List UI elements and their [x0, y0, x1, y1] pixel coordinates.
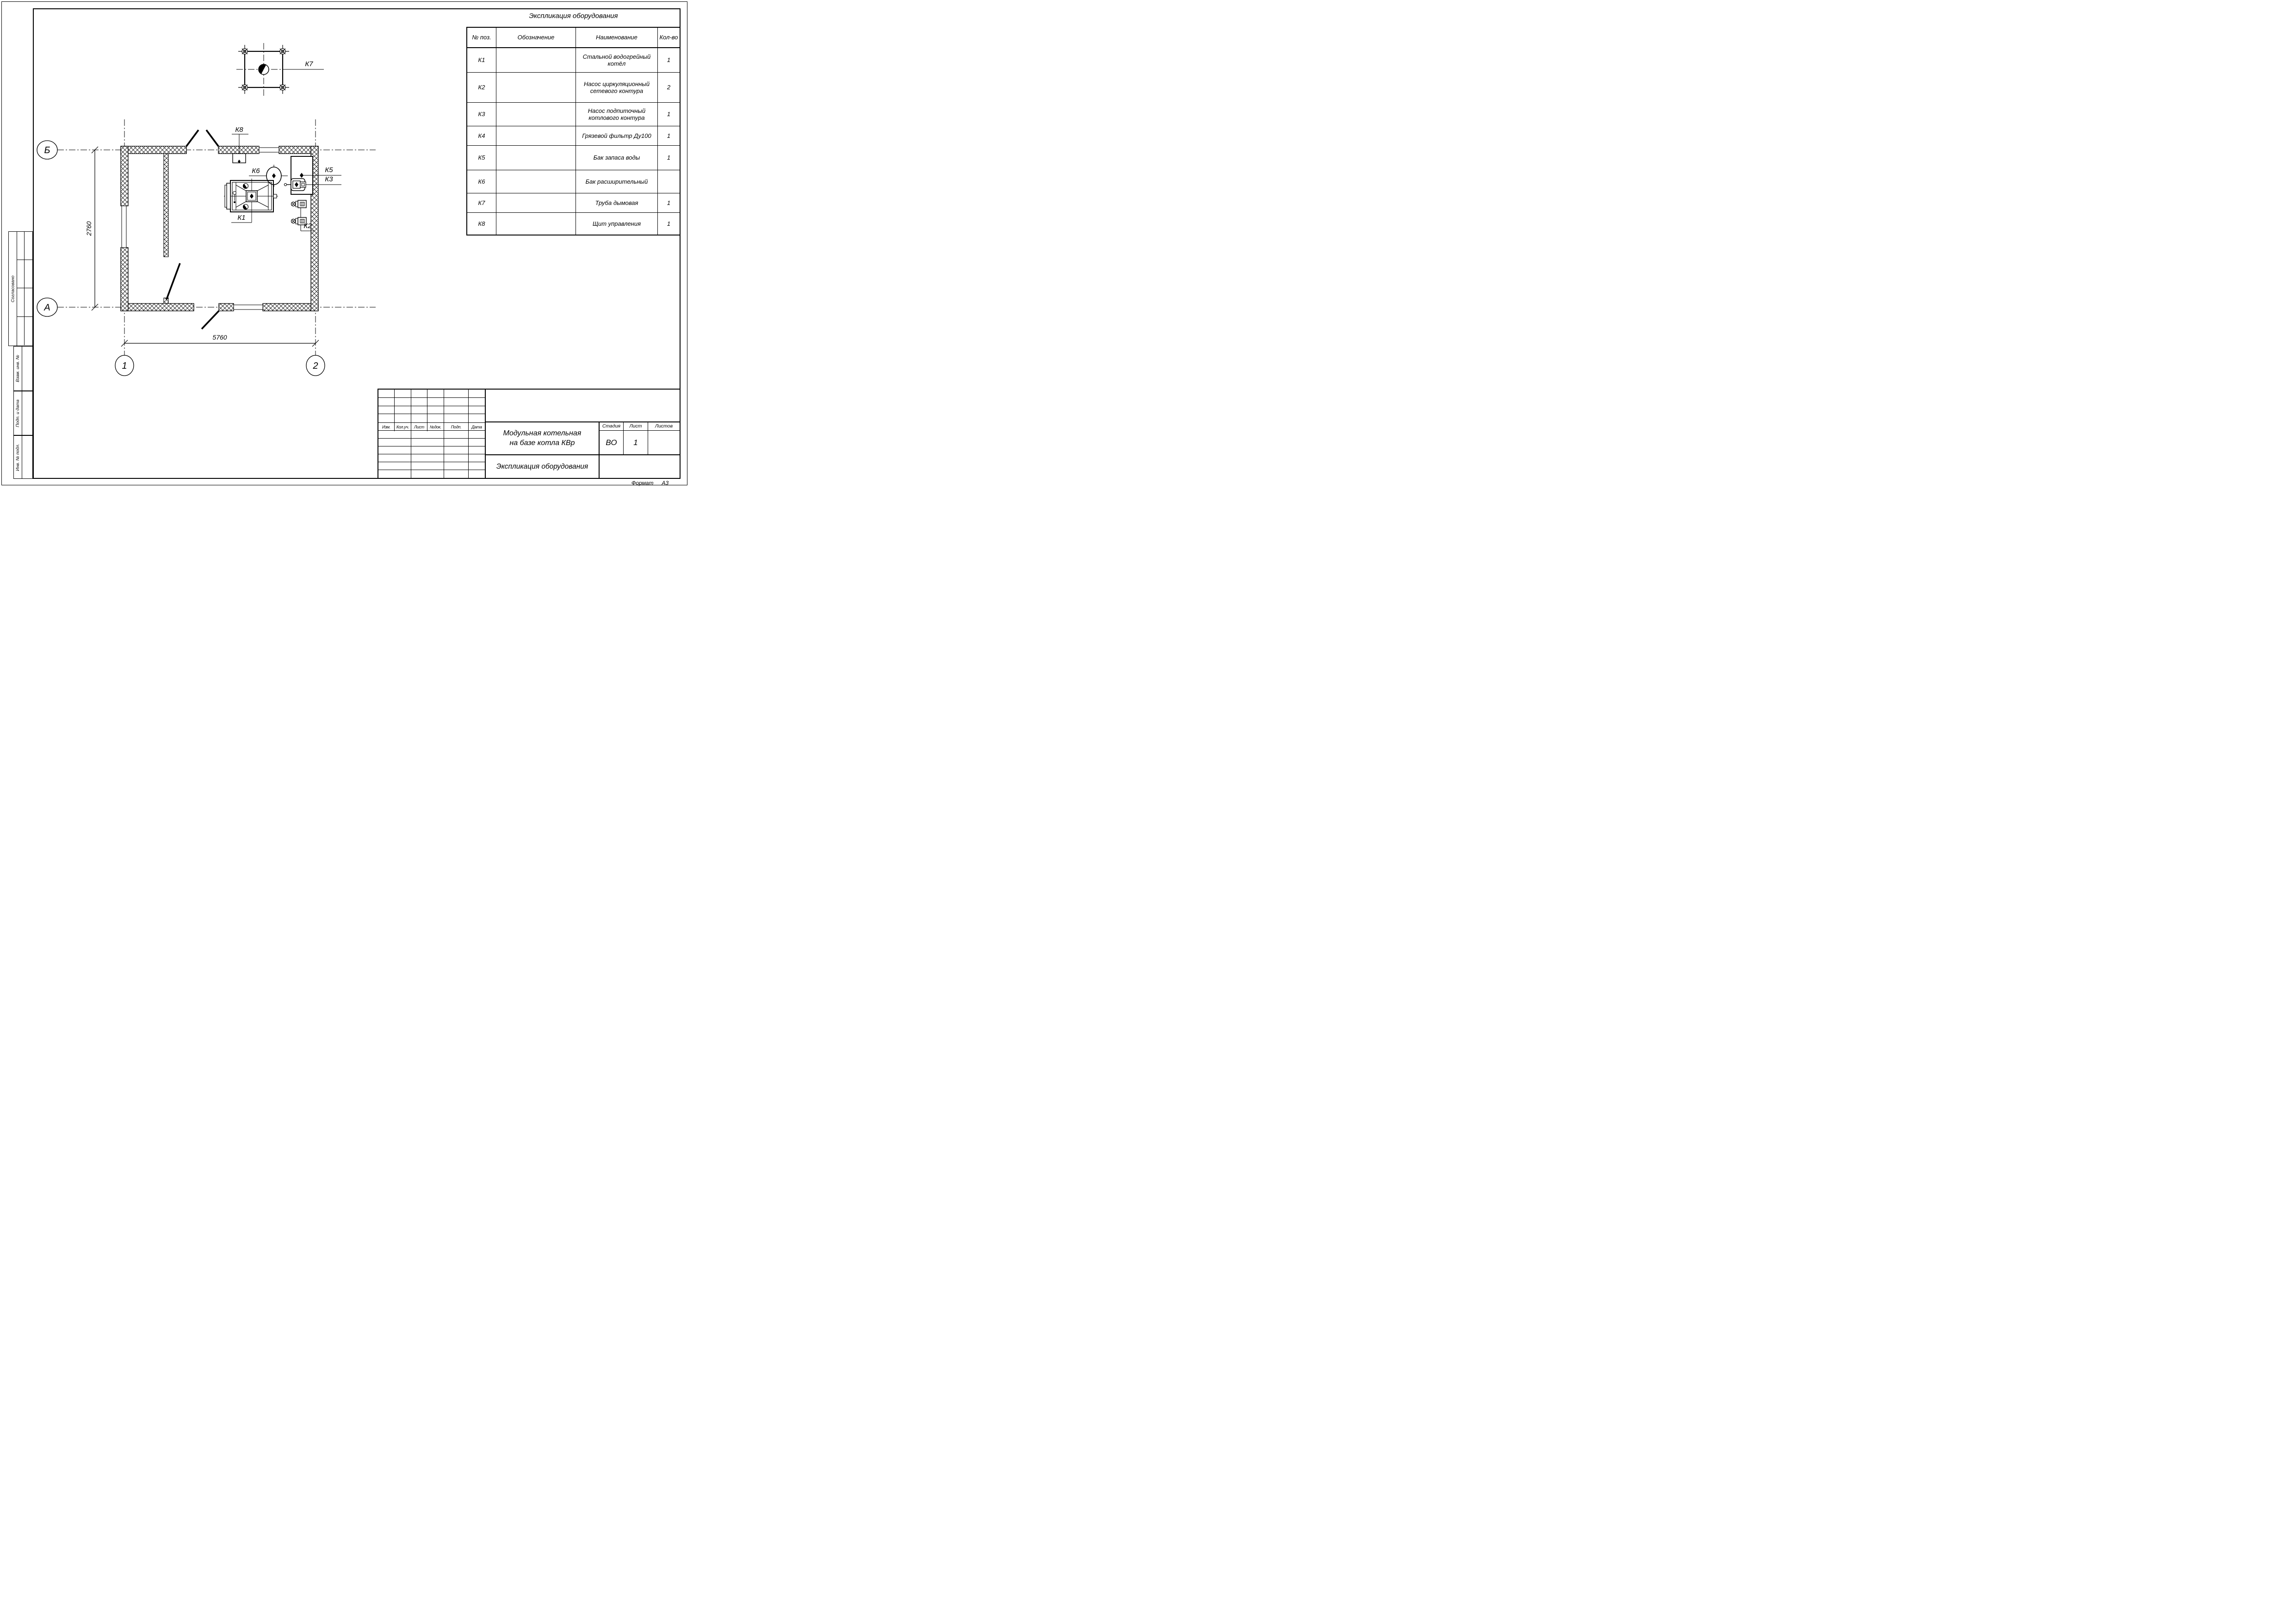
cell-pos: К7 — [467, 193, 496, 212]
cell-name: Стальной водогрейный котёл — [576, 48, 658, 72]
project-name: Модульная котельная на базе котла КВр — [486, 422, 599, 454]
cell-designation — [496, 126, 576, 145]
podp-data-label: Подп. и дата — [14, 391, 22, 435]
rev-header-podp: Подп. — [444, 423, 469, 431]
tag-k8: К8 — [235, 126, 243, 134]
cell-qty: 2 — [658, 73, 680, 102]
table-row: К6 Бак расширительный — [467, 170, 680, 193]
cell-pos: К2 — [467, 73, 496, 102]
cell-designation — [496, 48, 576, 72]
cell-qty — [658, 170, 680, 193]
stage-value: ВО — [600, 431, 623, 454]
equipment-table-header: № поз. Обозначение Наименование Кол-во — [467, 28, 680, 48]
format-label: Формат — [631, 480, 654, 486]
title-block: Изм. Кол.уч. Лист №док. Подп. Дата Модул… — [378, 389, 681, 479]
sheets-label: Листов — [648, 422, 680, 430]
pump-icon — [291, 200, 307, 208]
cell-name: Труба дымовая — [576, 193, 658, 212]
rev-header-ndok: №док. — [427, 423, 444, 431]
cell-qty: 1 — [658, 103, 680, 126]
sheet-value: 1 — [624, 431, 648, 454]
cell-name: Грязевой фильтр Ду100 — [576, 126, 658, 145]
boiler-k1: К1 — [224, 179, 278, 223]
cell-designation — [496, 193, 576, 212]
anchor-bolt-icon — [276, 45, 289, 58]
vzam-inv-label: Взам. инв. № — [14, 347, 22, 390]
rev-header-izm: Изм. — [378, 423, 395, 431]
cell-pos: К5 — [467, 146, 496, 170]
axis-label-1: 1 — [122, 361, 127, 371]
axis-label-2: 2 — [312, 361, 318, 371]
equipment-table-title: Экспликация оборудования — [466, 12, 681, 20]
tag-k3: К3 — [325, 175, 333, 183]
control-panel-k8: К8 — [232, 126, 248, 163]
table-row: К2 Насос циркуляционный сетевого контура… — [467, 73, 680, 103]
project-name-line1: Модульная котельная — [503, 429, 582, 439]
table-row: К8 Щит управления 1 — [467, 213, 680, 235]
col-header-pos: № поз. — [467, 28, 496, 47]
doc-name: Экспликация оборудования — [486, 455, 599, 478]
anchor-bolt-icon — [238, 45, 251, 58]
tag-k5: К5 — [325, 166, 333, 174]
axis-lines — [57, 119, 376, 355]
approval-stamp-label: Согласовано — [9, 232, 17, 346]
interior-door-leaf — [167, 263, 180, 299]
format-value: А3 — [662, 480, 668, 486]
cell-pos: К4 — [467, 126, 496, 145]
cell-designation — [496, 103, 576, 126]
tag-k1: К1 — [237, 214, 245, 222]
tag-k2: К2 — [303, 222, 312, 230]
cell-pos: К8 — [467, 213, 496, 235]
col-header-designation: Обозначение — [496, 28, 576, 47]
chimney-foundation-detail: К7 — [236, 43, 324, 96]
drawing-sheet: { "page": { "format_label": "Формат", "f… — [0, 0, 689, 487]
dim-height: 2760 — [85, 221, 93, 236]
table-row: К3 Насос подпиточный котлового контура 1 — [467, 103, 680, 126]
building-walls — [121, 146, 318, 311]
cell-name: Бак запаса воды — [576, 146, 658, 170]
approval-stamp: Согласовано — [8, 231, 33, 346]
inv-podl-stamp: Инв. № подл. — [13, 435, 33, 479]
cell-name: Насос циркуляционный сетевого контура — [576, 73, 658, 102]
boiler-door — [227, 183, 230, 209]
cell-name: Щит управления — [576, 213, 658, 235]
rev-header-koluch: Кол.уч. — [395, 423, 411, 431]
axis-label-a: А — [43, 303, 50, 313]
org-cell — [600, 455, 680, 478]
axis-label-b: Б — [44, 145, 50, 155]
cell-designation — [496, 73, 576, 102]
format-note: Формат А3 — [615, 480, 685, 486]
doc-designation-cell — [486, 390, 680, 421]
door-leaves — [167, 130, 219, 329]
tag-k7: К7 — [305, 60, 313, 68]
table-row: К5 Бак запаса воды 1 — [467, 146, 680, 170]
cell-pos: К1 — [467, 48, 496, 72]
table-row: К1 Стальной водогрейный котёл 1 — [467, 48, 680, 73]
table-row: К4 Грязевой фильтр Ду100 1 — [467, 126, 680, 146]
sheets-value — [648, 431, 680, 454]
rear-door-leaf — [202, 311, 219, 329]
rev-header-list: Лист — [411, 423, 427, 431]
equipment-table: № поз. Обозначение Наименование Кол-во К… — [466, 27, 681, 235]
cell-qty: 1 — [658, 146, 680, 170]
dim-width: 5760 — [212, 334, 227, 341]
table-row: К7 Труба дымовая 1 — [467, 193, 680, 213]
podp-data-stamp: Подп. и дата — [13, 391, 33, 435]
stage-label: Стадия — [600, 422, 623, 430]
approval-stamp-cells — [17, 232, 32, 346]
col-header-qty: Кол-во — [658, 28, 680, 47]
project-name-line2: на базе котла КВр — [509, 439, 575, 448]
revision-header-row: Изм. Кол.уч. Лист №док. Подп. Дата — [378, 422, 485, 431]
entrance-door-left-leaf — [186, 130, 198, 146]
col-header-name: Наименование — [576, 28, 658, 47]
cell-designation — [496, 146, 576, 170]
signature-grid — [378, 431, 485, 478]
cell-qty: 1 — [658, 193, 680, 212]
cell-pos: К6 — [467, 170, 496, 193]
rev-header-data: Дата — [469, 423, 485, 431]
anchor-bolt-icon — [238, 81, 251, 94]
entrance-door-right-leaf — [206, 130, 218, 146]
anchor-bolt-icon — [276, 81, 289, 94]
cell-name: Насос подпиточный котлового контура — [576, 103, 658, 126]
cell-name: Бак расширительный — [576, 170, 658, 193]
cell-qty: 1 — [658, 48, 680, 72]
revision-grid-top — [378, 390, 485, 422]
inv-podl-label: Инв. № подл. — [14, 436, 22, 478]
sheet-label: Лист — [624, 422, 648, 430]
vzam-inv-stamp: Взам. инв. № — [13, 346, 33, 391]
cell-qty: 1 — [658, 213, 680, 235]
partition-wall — [164, 154, 168, 257]
cell-designation — [496, 213, 576, 235]
cell-qty: 1 — [658, 126, 680, 145]
cell-pos: К3 — [467, 103, 496, 126]
cell-designation — [496, 170, 576, 193]
tag-k6: К6 — [252, 167, 260, 175]
